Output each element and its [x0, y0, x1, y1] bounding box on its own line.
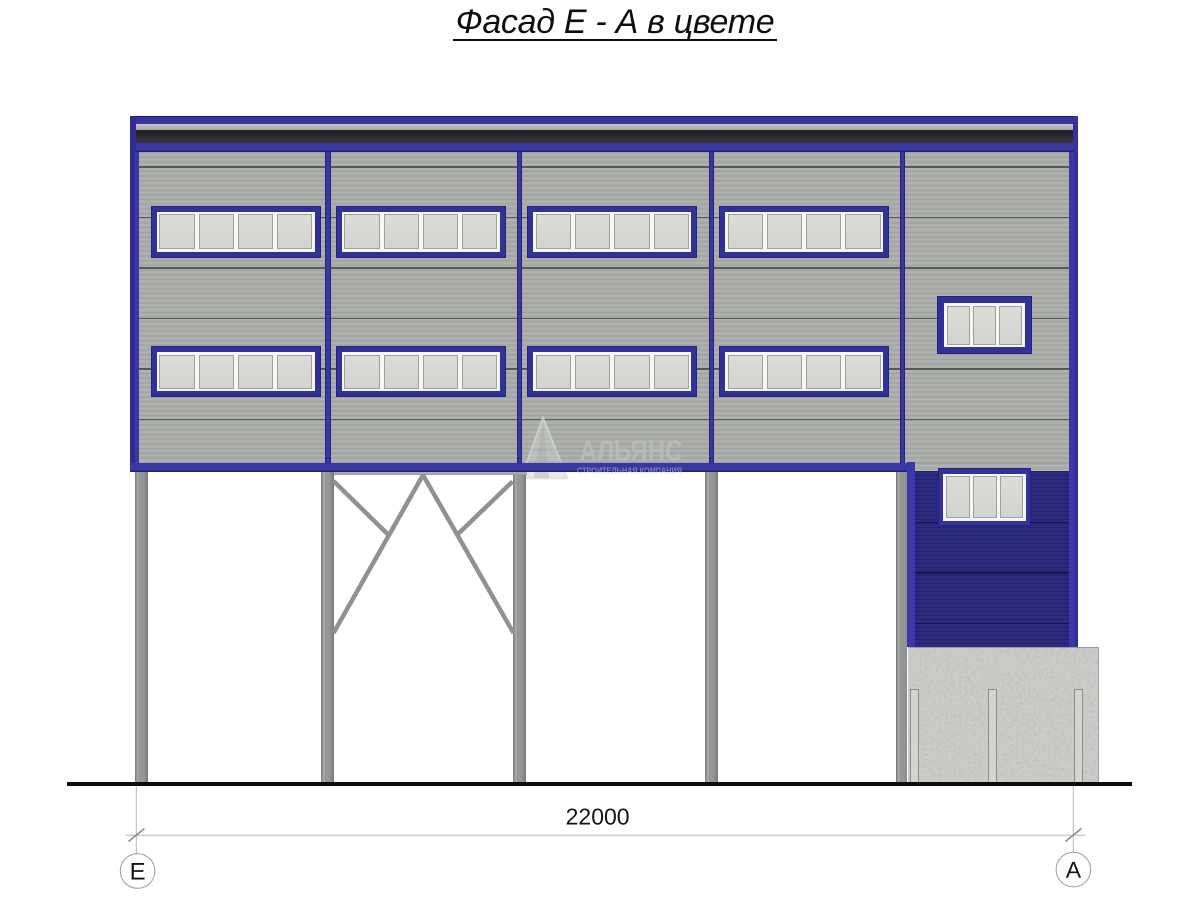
svg-text:А: А	[1066, 857, 1082, 883]
svg-text:22000: 22000	[566, 803, 630, 829]
svg-text:Е: Е	[130, 858, 146, 885]
svg-text:СТРОИТЕЛЬНАЯ КОМПАНИЯ: СТРОИТЕЛЬНАЯ КОМПАНИЯ	[577, 467, 682, 476]
